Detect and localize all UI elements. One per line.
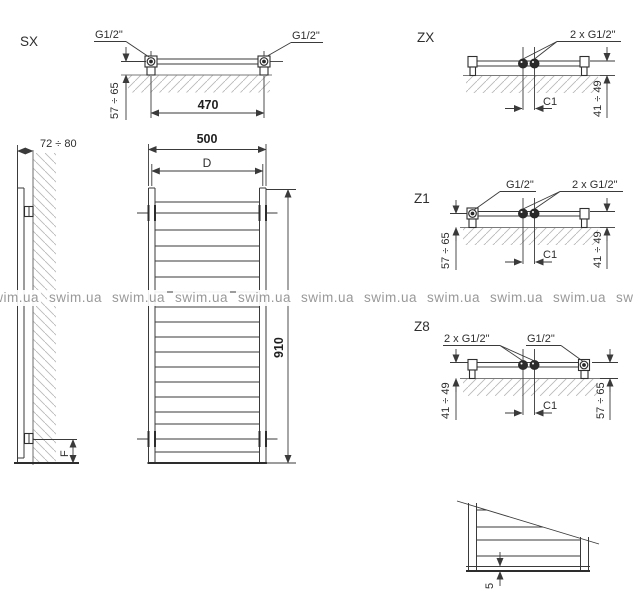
z8-dim-wall-offset-right-text: 57 ÷ 65 [595,382,607,419]
z1-left-conn-label: G1/2" [506,179,534,191]
z8-left-cap [468,360,477,379]
front-collectors [148,188,268,463]
side-top-bracket [25,207,34,217]
zx-view-label: ZX [417,30,434,45]
zx-left-cap [468,57,477,76]
zx-dim-wall-offset-text: 41 ÷ 49 [592,80,604,117]
z1-center-conn-label: 2 x G1/2" [572,179,618,191]
z1-dim-center-spacing-text: C1 [543,249,557,261]
zx-dim-center-spacing-text: C1 [543,96,557,108]
sx-right-connector [258,51,270,75]
z1-dim-wall-offset-left: 57 ÷ 65 [440,200,467,270]
sx-left-connector [145,51,157,75]
watermark-text: swim.ua [614,290,634,306]
front-connection-marks [137,205,278,447]
z8-center-conn-label: 2 x G1/2" [444,333,490,345]
watermark-text: swim.ua [110,290,167,306]
zx-center-conn-label: 2 x G1/2" [570,29,616,41]
zx-dim-center-spacing: C1 [505,96,557,109]
sx-dim-wall-offset-text: 57 ÷ 65 [109,82,121,119]
z1-dim-wall-offset-left-text: 57 ÷ 65 [440,232,452,269]
break-line [457,501,599,544]
watermark-text: swim.ua [551,290,608,306]
z1-view: Z1 G1/2" 2 x G1/2" [414,179,623,270]
front-dim-width-text: 500 [197,132,218,146]
watermark-text: swim.ua [362,290,419,306]
z8-view: Z8 2 x G1/2" G1/2" [414,319,618,420]
side-bottom-bracket [25,434,34,444]
z1-dim-wall-offset-right-text: 41 ÷ 49 [592,231,604,268]
watermark-text: swim.ua [488,290,545,306]
front-dim-axis: D [152,156,263,186]
sx-view-label: SX [20,34,38,49]
z8-dim-center-spacing: C1 [505,400,557,413]
z1-right-cap [580,209,589,228]
z1-view-label: Z1 [414,191,430,206]
z8-right-connector [579,360,590,379]
sx-left-conn-label: G1/2" [95,29,123,41]
watermark-text: swim.ua [299,290,356,306]
watermark-text: swim.ua [425,290,482,306]
front-dim-height: 910 [266,190,296,464]
bottom-detail-view: 5 [457,501,599,589]
watermark-text: swim.ua [173,290,230,306]
sx-right-conn-label: G1/2" [292,30,320,42]
sx-dim-conn-spacing-text: 470 [198,98,219,112]
z8-dim-center-spacing-text: C1 [543,400,557,412]
z8-view-label: Z8 [414,319,430,334]
front-dim-axis-text: D [203,156,212,170]
sx-wall-hatch [128,76,270,93]
zx-wall-hatch [466,76,598,93]
z8-wall-hatch [463,379,598,396]
z1-dim-center-spacing: C1 [505,249,557,262]
side-dim-depth-text: 72 ÷ 80 [40,138,77,150]
zx-view: ZX 2 x G1/2" C1 [417,29,621,118]
front-dim-height-text: 910 [272,337,286,358]
watermark-text: swim.ua [0,290,41,306]
zx-right-cap [580,57,589,76]
zx-dim-wall-offset: 41 ÷ 49 [590,47,615,118]
watermark-text: swim.ua [47,290,104,306]
front-rungs [155,202,260,452]
technical-drawing-page: SX G1/2" G1/2" [0,0,634,600]
sx-view: SX G1/2" G1/2" [20,29,323,120]
z1-left-connector [467,208,478,228]
side-wall-hatch [34,153,57,462]
z1-dim-wall-offset-right: 41 ÷ 49 [590,198,615,269]
z1-wall-hatch [463,228,598,245]
z8-right-conn-label: G1/2" [527,333,555,345]
z8-dim-wall-offset-left-text: 41 ÷ 49 [440,382,452,419]
watermark-text: swim.ua [236,290,293,306]
z8-dim-wall-offset-right: 57 ÷ 65 [592,349,618,420]
side-dim-floor-offset-text: F [59,450,71,457]
detail-dim-bottom-gap-text: 5 [484,583,496,589]
